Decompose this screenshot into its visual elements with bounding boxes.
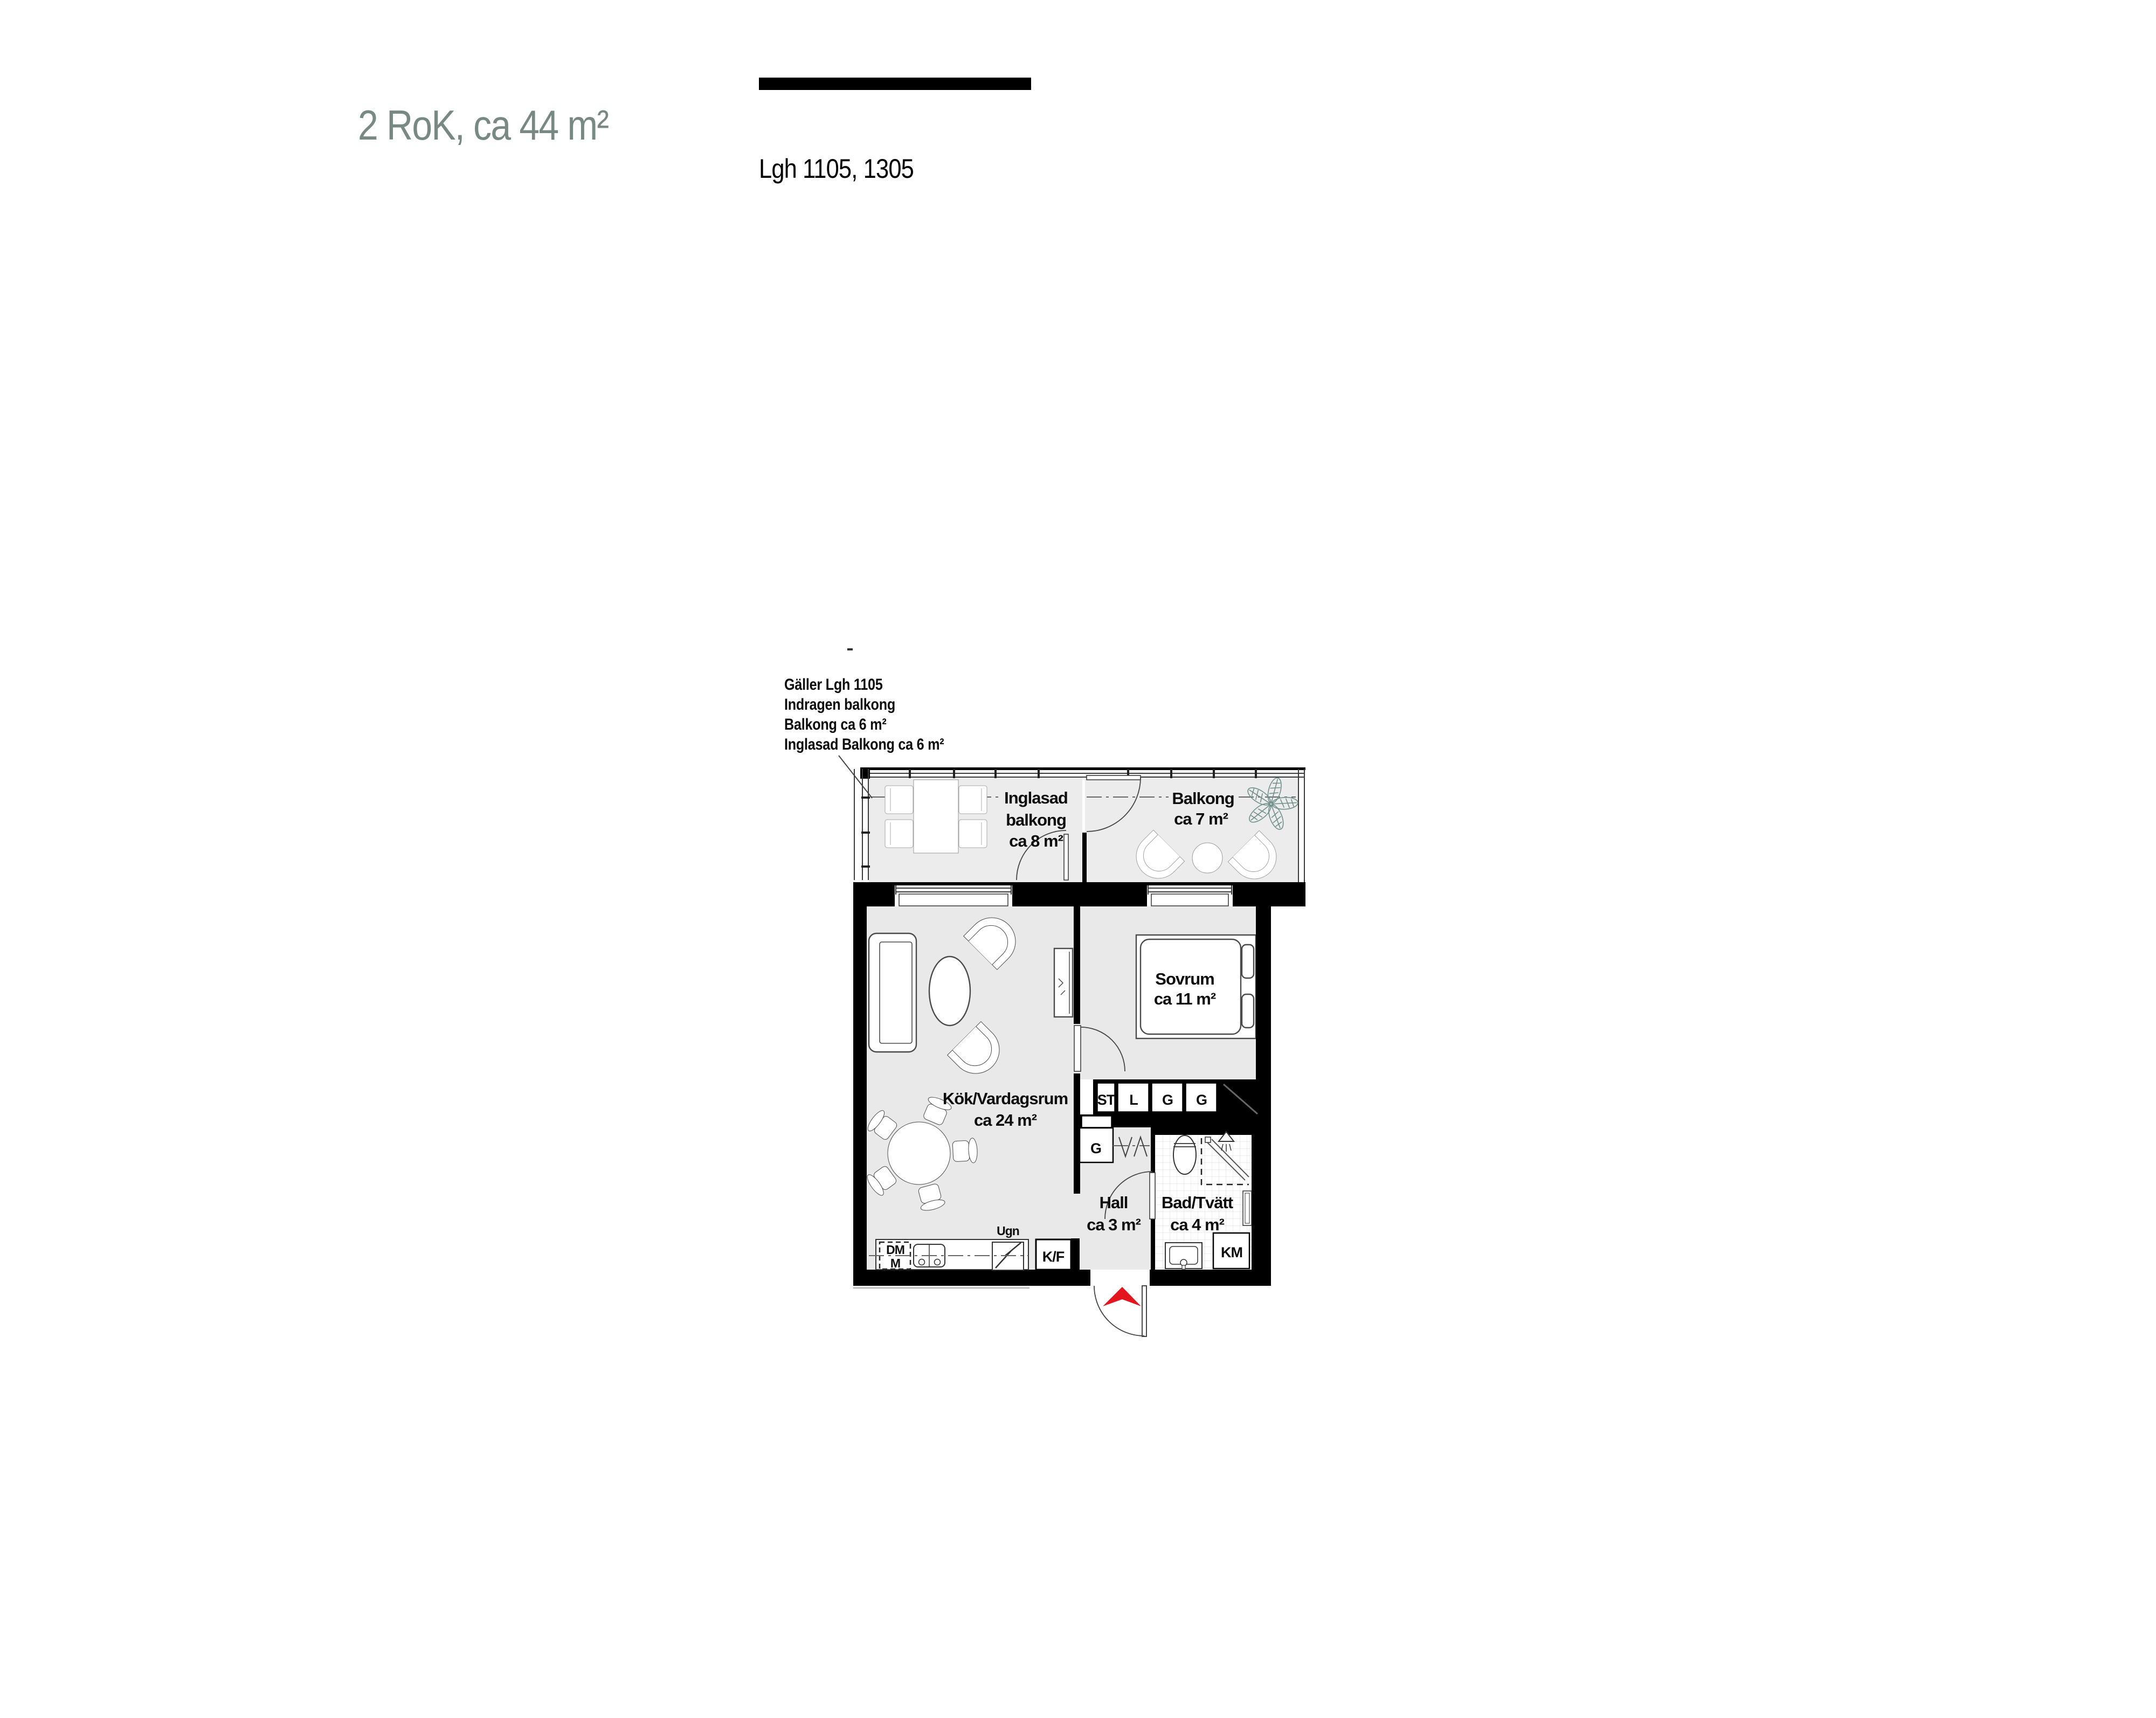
tick-mark [847,648,853,650]
room-label-kok-area: ca 24 m² [974,1111,1037,1130]
room-label-sovrum-area: ca 11 m² [1154,989,1216,1008]
pillow-icon [1242,994,1254,1028]
balcony-door-leaf [1087,775,1141,780]
toilet-icon [1173,1135,1196,1174]
fridge-freezer-label: K/F [1042,1249,1065,1265]
washing-machine-label: KM [1221,1244,1242,1260]
entrance-arrow-icon [1103,1287,1141,1306]
sofa-icon [869,933,916,1052]
chair-icon [959,820,987,848]
window-sill [1151,894,1228,906]
room-label-sovrum: Sovrum [1155,969,1214,988]
chair-icon [885,820,913,848]
radiator-icon [1243,1191,1252,1225]
room-label-inglasad-1: Inglasad [1004,788,1068,807]
bedroom-window [1147,882,1233,906]
chair-icon [959,786,987,814]
entrance-threshold [1090,1270,1150,1286]
room-label-balkong: Balkong [1172,789,1234,808]
window-sill [899,894,1008,906]
balcony-strip [854,767,1305,888]
chair-icon [885,786,913,814]
pillow-icon [1242,945,1254,978]
room-label-balkong-area: ca 7 m² [1174,809,1228,828]
balcony-divider-wall [1082,833,1087,882]
room-label-bad: Bad/Tvätt [1162,1193,1233,1212]
hall-cabinet-label: G [1090,1140,1101,1156]
bedroom-door-leaf [1074,1026,1081,1071]
closet-l-label: L [1129,1092,1138,1108]
oven-label: Ugn [997,1224,1019,1238]
micro-label: M [890,1256,900,1270]
glazed-balcony-door-leaf [1064,834,1068,880]
room-label-bad-area: ca 4 m² [1170,1215,1225,1234]
hall-cabinet: G [1080,1116,1113,1162]
closet-st-label: ST [1097,1092,1116,1108]
room-label-inglasad-2: balkong [1006,810,1066,829]
tv-bench-icon [1054,948,1073,1017]
room-label-hall-area: ca 3 m² [1087,1215,1141,1234]
table-icon [914,780,958,853]
coffee-table-icon [929,957,970,1026]
side-table-icon [1192,843,1222,873]
closet-g1-label: G [1162,1092,1173,1108]
entrance-door-leaf [1142,1286,1146,1336]
room-label-inglasad-area: ca 8 m² [1009,832,1063,850]
washbasin-icon [1165,1243,1202,1269]
closet-g2-label: G [1196,1092,1207,1108]
room-label-kok: Kök/Vardagsrum [943,1089,1068,1108]
entrance-door [1090,1270,1150,1336]
room-label-hall: Hall [1100,1193,1128,1212]
floorplan-drawing: ST L G G G DM M [0,0,2156,1718]
floorplan-page: 2 RoK, ca 44 m² Lgh 1105, 1305 Gäller Lg… [0,0,2156,1718]
bathroom-door-leaf [1150,1173,1155,1219]
railing-top-line [860,767,1305,770]
dishwasher-label: DM [886,1243,904,1257]
livingroom-window [895,882,1012,906]
